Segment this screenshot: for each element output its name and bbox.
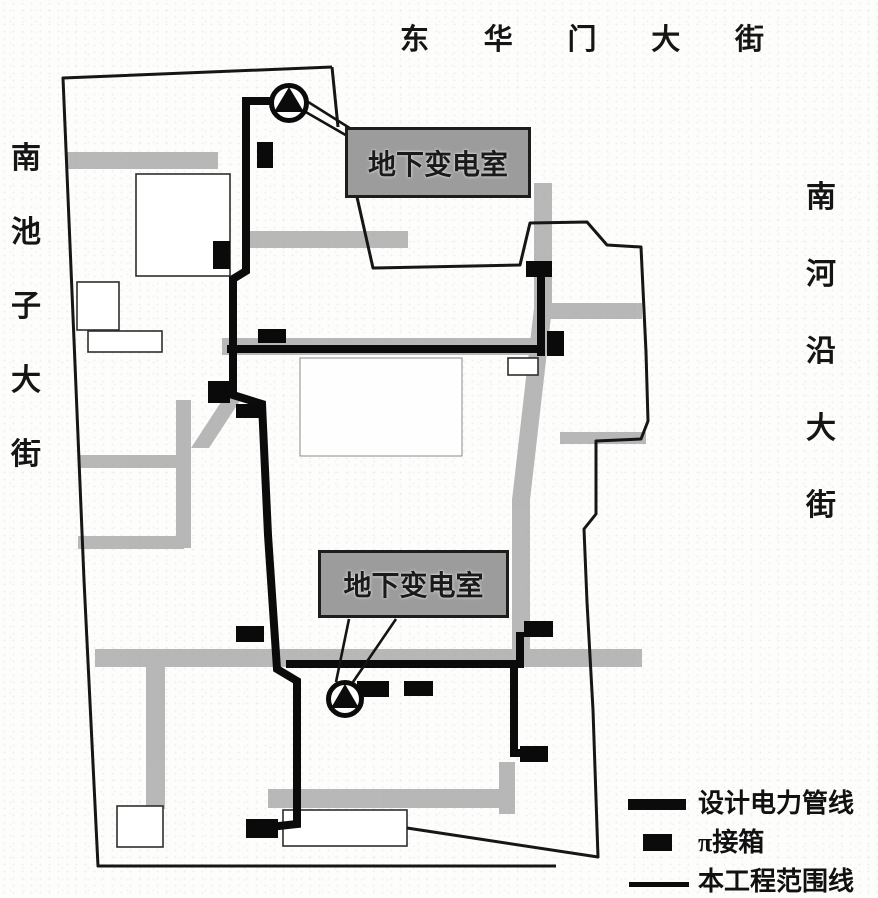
street-char: 大 (806, 414, 836, 444)
street-char: 街 (735, 26, 764, 55)
legend-label-junction-box: π接箱 (698, 830, 764, 856)
street-band (268, 789, 510, 808)
street-band (191, 396, 243, 448)
street-char: 华 (484, 26, 513, 55)
junction-box (236, 626, 264, 642)
substation-callout-top: 地下变电室 (345, 127, 531, 198)
substation-callout-bottom: 地下变电室 (318, 550, 509, 618)
legend-thick-line-swatch (628, 799, 686, 810)
building (283, 810, 407, 846)
street-char: 河 (806, 260, 836, 290)
substation-symbol-bottom (329, 683, 362, 716)
street-char: 池 (11, 218, 41, 248)
building (508, 358, 538, 375)
street-char: 街 (806, 491, 836, 521)
street-char: 大 (11, 366, 41, 396)
legend-thin-line-swatch (629, 882, 689, 887)
street-label-donghuamen: 东 华 门 大 街 (400, 26, 764, 55)
street-band (512, 308, 552, 500)
junction-box (236, 404, 264, 418)
street-band (246, 231, 408, 248)
power-line-main-trunk (233, 101, 297, 829)
building (77, 282, 119, 330)
junction-box (547, 331, 564, 356)
building (300, 358, 462, 456)
street-char: 子 (11, 292, 41, 322)
substation-symbol-top (272, 86, 307, 121)
street-label-nanheyan: 南 河 沿 大 街 (803, 183, 839, 521)
legend-label-boundary-line: 本工程范围线 (698, 869, 854, 895)
junction-box (257, 142, 273, 168)
street-band (78, 536, 184, 549)
junction-box (526, 261, 552, 277)
substation-callout-label: 地下变电室 (343, 564, 483, 604)
building (117, 806, 163, 847)
street-label-nanchizi: 南 池 子 大 街 (8, 144, 44, 470)
building (88, 331, 162, 352)
junction-box (213, 241, 230, 269)
map-canvas: 东 华 门 大 街 南 池 子 大 街 南 河 沿 大 街 地下变电室 地下变电… (0, 0, 878, 898)
street-char: 门 (567, 26, 596, 55)
legend-label-power-line: 设计电力管线 (698, 791, 854, 817)
street-band (176, 400, 191, 548)
power-line-group (231, 101, 541, 829)
legend-junction-box-swatch (643, 834, 672, 851)
street-band (499, 762, 515, 814)
street-char: 东 (400, 26, 429, 55)
junction-box (246, 819, 278, 838)
boundary-right (357, 197, 648, 857)
junction-box (520, 746, 548, 762)
street-char: 南 (806, 183, 836, 213)
street-char: 大 (651, 26, 680, 55)
street-char: 沿 (806, 337, 836, 367)
street-band (146, 667, 165, 809)
street-char: 街 (11, 440, 41, 470)
street-char: 南 (11, 144, 41, 174)
street-band (78, 455, 184, 468)
power-line-lower-branch (514, 664, 523, 753)
junction-box (258, 329, 286, 343)
street-band (66, 152, 218, 169)
substation-callout-label: 地下变电室 (368, 143, 508, 183)
street-band (538, 303, 642, 319)
junction-box (404, 681, 433, 696)
junction-box (524, 621, 553, 637)
junction-box (208, 381, 230, 403)
